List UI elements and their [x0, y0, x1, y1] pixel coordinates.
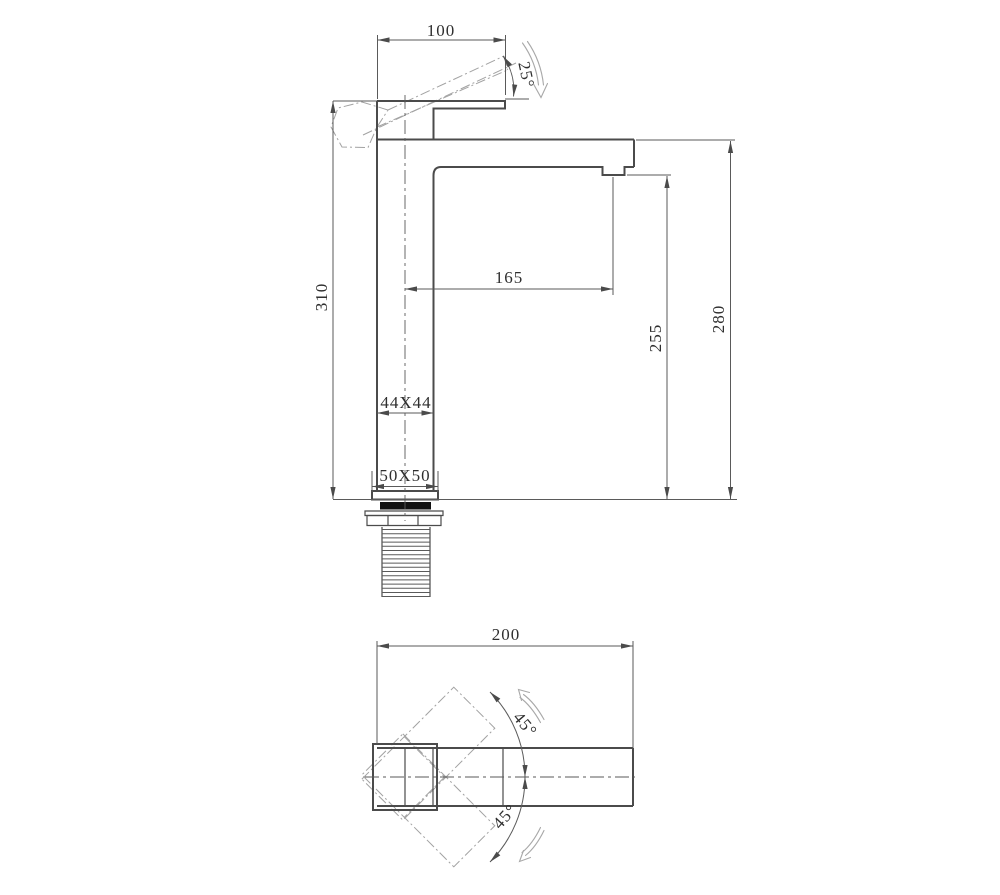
dim-body-section-label: 44X44 — [380, 393, 431, 412]
dim-top-width: 100 — [378, 21, 506, 99]
handle-phantom-swing-down — [362, 734, 495, 867]
elevation-view: 100 25° 310 165 — [312, 21, 737, 597]
plan-view: 200 45° 45° — [362, 625, 635, 867]
mounting-nut-flange — [365, 511, 443, 516]
dim-spout-reach-label: 165 — [495, 268, 524, 287]
dim-swing-up-label: 45° — [509, 708, 541, 741]
dim-spout-reach: 165 — [405, 177, 613, 295]
handle-lever — [377, 101, 505, 140]
dim-outlet-height-label: 255 — [646, 324, 665, 353]
dim-swing-down-label: 45° — [489, 800, 521, 833]
mounting-nut-body — [367, 516, 441, 526]
dim-total-height: 310 — [312, 101, 377, 499]
mounting-hardware — [365, 502, 443, 597]
dim-overall-length-label: 200 — [492, 625, 521, 644]
dim-body-section: 44X44 — [377, 393, 434, 413]
dim-total-height-label: 310 — [312, 283, 331, 312]
mounting-seal — [380, 502, 431, 510]
faucet-outline — [372, 101, 634, 500]
dim-spout-top-height: 280 — [636, 140, 735, 499]
technical-drawing-page: 100 25° 310 165 — [0, 0, 1000, 895]
dim-swing-down: 45° — [489, 777, 544, 862]
handle-phantom-centerline — [363, 63, 516, 135]
dim-handle-angle: 25° — [503, 42, 548, 100]
handle-phantom-swing-up — [362, 687, 495, 820]
handle-phantom-butt — [331, 102, 388, 148]
dim-outlet-height: 255 — [627, 175, 671, 499]
dim-base-section-label: 50X50 — [379, 466, 430, 485]
dim-spout-top-height-label: 280 — [709, 305, 728, 334]
spout-underside-and-outlet — [434, 167, 635, 491]
dim-overall-length: 200 — [377, 625, 633, 748]
dim-swing-up: 45° — [490, 690, 544, 778]
faucet-dimension-drawing: 100 25° 310 165 — [0, 0, 1000, 895]
mounting-nut-faces — [388, 516, 418, 526]
swing-down-arrow — [520, 828, 545, 862]
dim-top-width-label: 100 — [427, 21, 456, 40]
thread-lines — [382, 530, 430, 597]
